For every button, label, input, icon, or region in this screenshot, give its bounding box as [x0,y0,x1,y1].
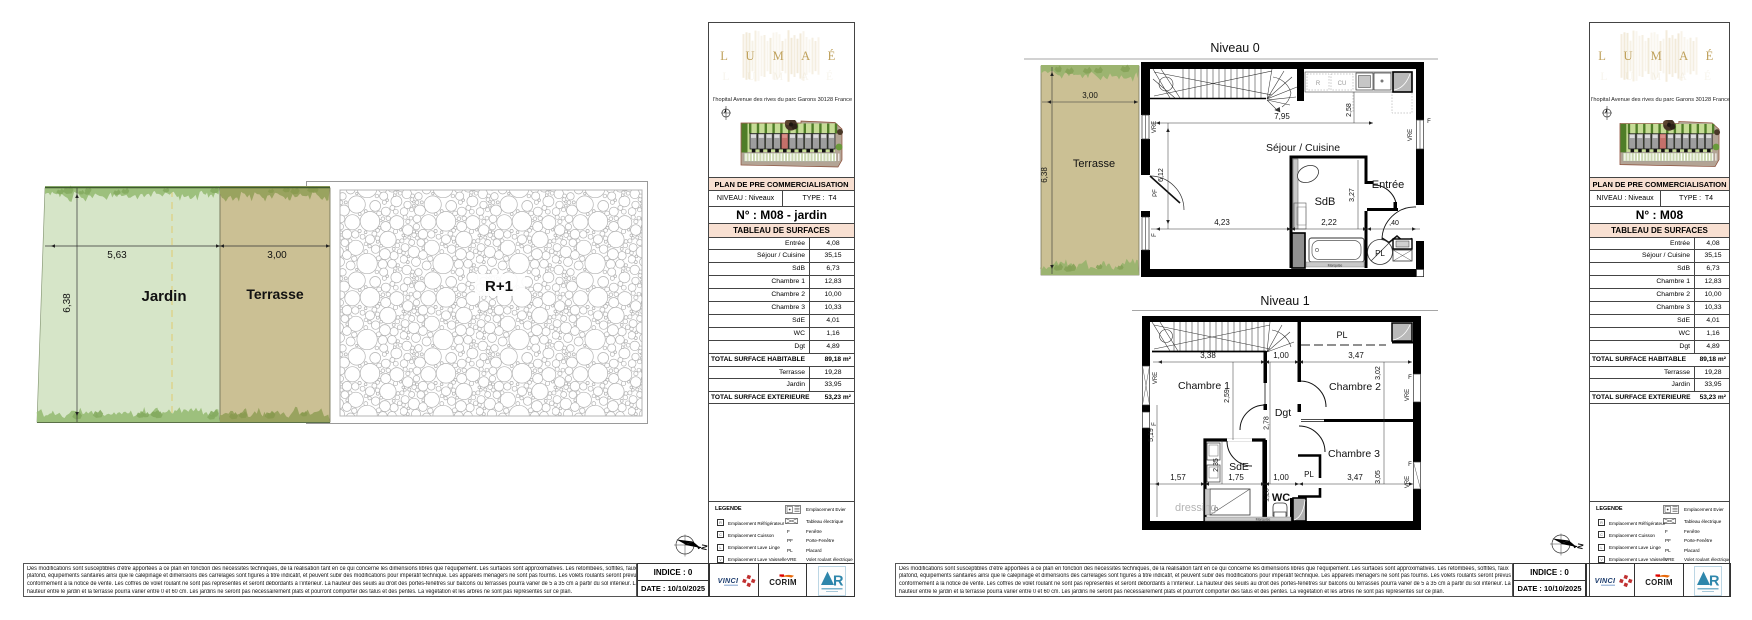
svg-text:3,05: 3,05 [1375,470,1382,484]
svg-text:3,00: 3,00 [1082,91,1098,100]
svg-text:1,00: 1,00 [1273,473,1289,482]
svg-text:R+1: R+1 [485,278,513,295]
svg-text:L U M A É: L U M A É [1598,49,1721,63]
svg-text:2,35: 2,35 [1213,458,1220,472]
svg-text:,40: ,40 [1389,220,1399,227]
svg-text:N: N [700,543,710,551]
svg-text:PL: PL [1375,249,1385,258]
svg-text:R: R [1316,81,1321,87]
svg-text:VINCI: VINCI [718,576,739,585]
svg-text:VRE: VRE [1408,129,1414,141]
svg-text:Terrasse: Terrasse [246,286,304,302]
svg-text:VRE: VRE [1153,372,1159,384]
svg-text:VINCI: VINCI [1595,576,1616,585]
svg-text:Jardin: Jardin [141,288,186,305]
svg-text:7,95: 7,95 [1274,112,1290,121]
svg-text:3,47: 3,47 [1347,473,1363,482]
svg-text:2,59: 2,59 [1224,389,1231,403]
svg-text:3,47: 3,47 [1348,351,1364,360]
svg-text:F: F [1408,375,1412,381]
svg-text:CU: CU [1338,81,1347,87]
svg-text:1,75: 1,75 [1228,473,1244,482]
svg-text:1,28: 1,28 [1264,488,1271,502]
svg-text:CORIM: CORIM [769,578,797,587]
svg-text:R: R [833,574,844,590]
svg-text:6,38: 6,38 [1040,167,1049,183]
svg-text:WC: WC [1272,492,1290,504]
svg-text:5,63: 5,63 [107,250,127,261]
svg-text:N: N [1576,542,1586,550]
svg-text:VRE: VRE [1405,476,1411,488]
svg-text:Niveau 1: Niveau 1 [1260,294,1309,308]
svg-text:2,22: 2,22 [1321,218,1337,227]
svg-text:6,38: 6,38 [62,293,73,313]
svg-text:Marquise: Marquise [1328,263,1343,267]
svg-text:CORIM: CORIM [1645,578,1673,587]
svg-text:3,00: 3,00 [267,250,287,261]
svg-text:Niveau 0: Niveau 0 [1210,41,1259,55]
svg-text:L U M A É: L U M A É [1600,69,1718,83]
svg-text:2,78: 2,78 [1264,416,1271,430]
svg-text:Chambre 1: Chambre 1 [1178,380,1230,392]
svg-text:1,00: 1,00 [1273,351,1289,360]
svg-text:SdB: SdB [1315,196,1336,208]
svg-text:dressing: dressing [1175,502,1217,514]
svg-text:PF: PF [1153,189,1159,197]
svg-text:3,38: 3,38 [1200,351,1216,360]
svg-text:Terrasse: Terrasse [1073,158,1115,170]
svg-text:PL: PL [1336,330,1347,340]
svg-text:PL: PL [1304,470,1314,479]
svg-text:VRE: VRE [1405,389,1411,401]
svg-text:Marquise: Marquise [1256,518,1271,522]
svg-text:SdE: SdE [1229,461,1249,473]
svg-text:Chambre 2: Chambre 2 [1329,381,1381,393]
svg-text:2,58: 2,58 [1346,103,1353,117]
svg-text:6,12: 6,12 [1158,168,1165,182]
svg-text:R: R [1709,574,1720,590]
svg-text:L U M A É: L U M A É [720,49,843,63]
svg-text:1,57: 1,57 [1170,473,1186,482]
svg-text:5,19: 5,19 [1148,428,1155,442]
svg-text:Séjour / Cuisine: Séjour / Cuisine [1266,142,1340,154]
svg-text:Dgt: Dgt [1275,407,1291,419]
svg-text:3,02: 3,02 [1375,366,1382,380]
svg-text:L U M A É: L U M A É [722,69,840,83]
svg-text:F: F [1427,119,1431,125]
svg-text:Chambre 3: Chambre 3 [1328,448,1380,460]
svg-text:F: F [1152,233,1158,237]
svg-text:3,27: 3,27 [1349,188,1356,202]
svg-text:4,23: 4,23 [1214,218,1230,227]
svg-text:F: F [1408,462,1412,468]
